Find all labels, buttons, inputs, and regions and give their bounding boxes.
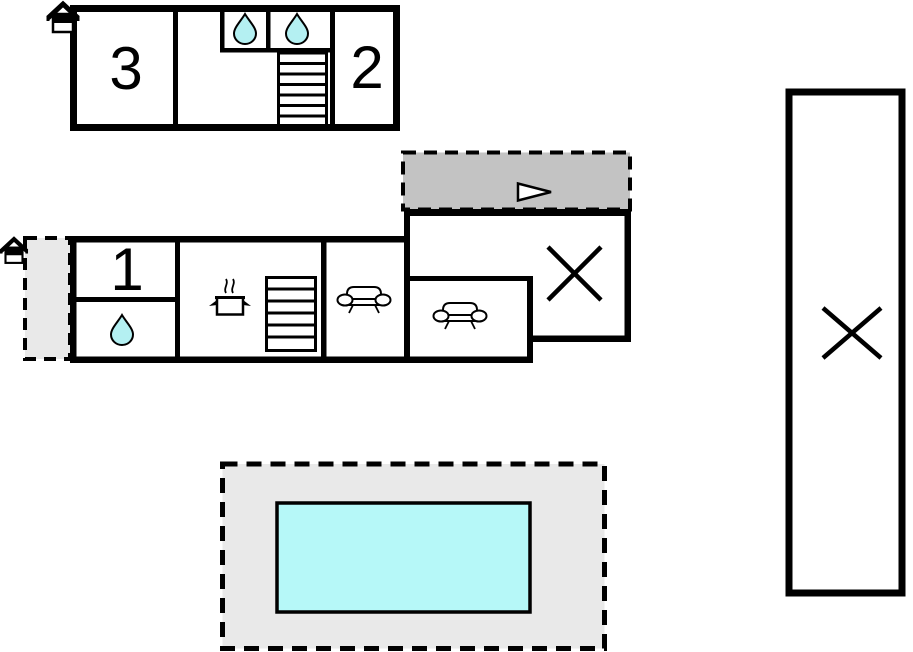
wall: [266, 11, 271, 52]
wall: [173, 11, 178, 125]
wall: [70, 236, 77, 363]
right-annex: [789, 92, 902, 593]
wall: [220, 48, 271, 53]
wall: [527, 336, 631, 343]
wall: [404, 276, 533, 281]
floor-plan: 3 2 1: [0, 0, 913, 652]
floor-plan-svg: 3 2 1: [0, 0, 913, 652]
wall: [220, 11, 225, 52]
right-annex-outline: [789, 92, 902, 593]
wall: [321, 242, 327, 357]
wall: [330, 11, 335, 125]
wall: [625, 209, 632, 342]
room1-label: 1: [110, 236, 143, 303]
ground-floor: 1: [70, 209, 631, 363]
driveway-area: [403, 153, 630, 210]
room2-label: 2: [350, 34, 383, 101]
house-icon: [1, 239, 27, 263]
wall: [404, 209, 631, 216]
room3-label: 3: [109, 35, 142, 102]
entry-area: [25, 238, 70, 359]
swimming-pool: [277, 503, 530, 612]
wall: [404, 242, 410, 357]
upper-floor: 3 2: [74, 9, 397, 128]
wall: [527, 276, 533, 363]
wall: [70, 357, 533, 364]
